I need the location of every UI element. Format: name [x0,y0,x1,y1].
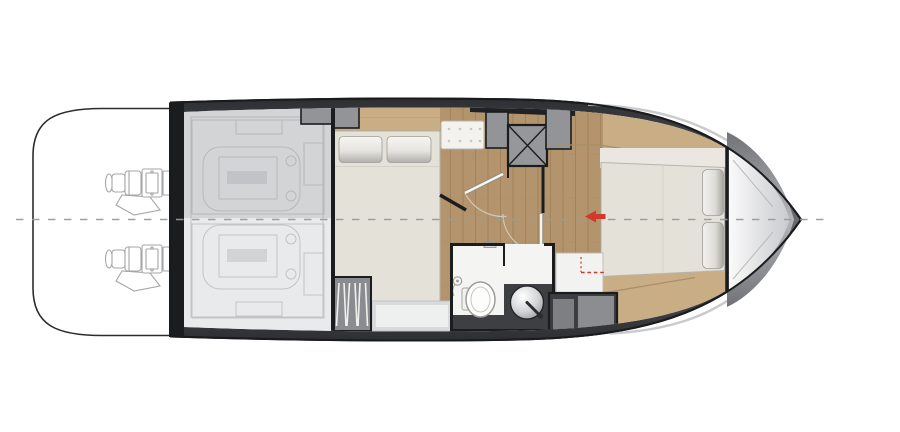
berth-step-top [376,305,448,327]
wardrobe-forward [546,104,571,149]
washbasin-icon [511,286,544,319]
guest-pillow-right [387,137,431,163]
yacht-floor-plan-page: Motor yacht lower-deck floor plan, bow t… [0,0,900,432]
yacht-floor-plan: Motor yacht lower-deck floor plan, bow t… [0,0,900,432]
guest-cabin [334,102,452,331]
engine-room [184,98,333,338]
engine-label-plate [227,249,267,262]
cabinet-small [486,112,508,148]
guest-pillow-left [339,137,382,163]
lower-deck-interior [184,96,729,338]
owner-pillow-bottom [703,223,724,269]
head [451,243,554,332]
companionway-steps [334,277,371,331]
swim-platform [33,109,171,336]
owner-pillow-top [703,170,724,216]
technical-space [508,125,547,166]
swim-platform-outline [33,109,171,336]
bench-seat [441,121,484,149]
